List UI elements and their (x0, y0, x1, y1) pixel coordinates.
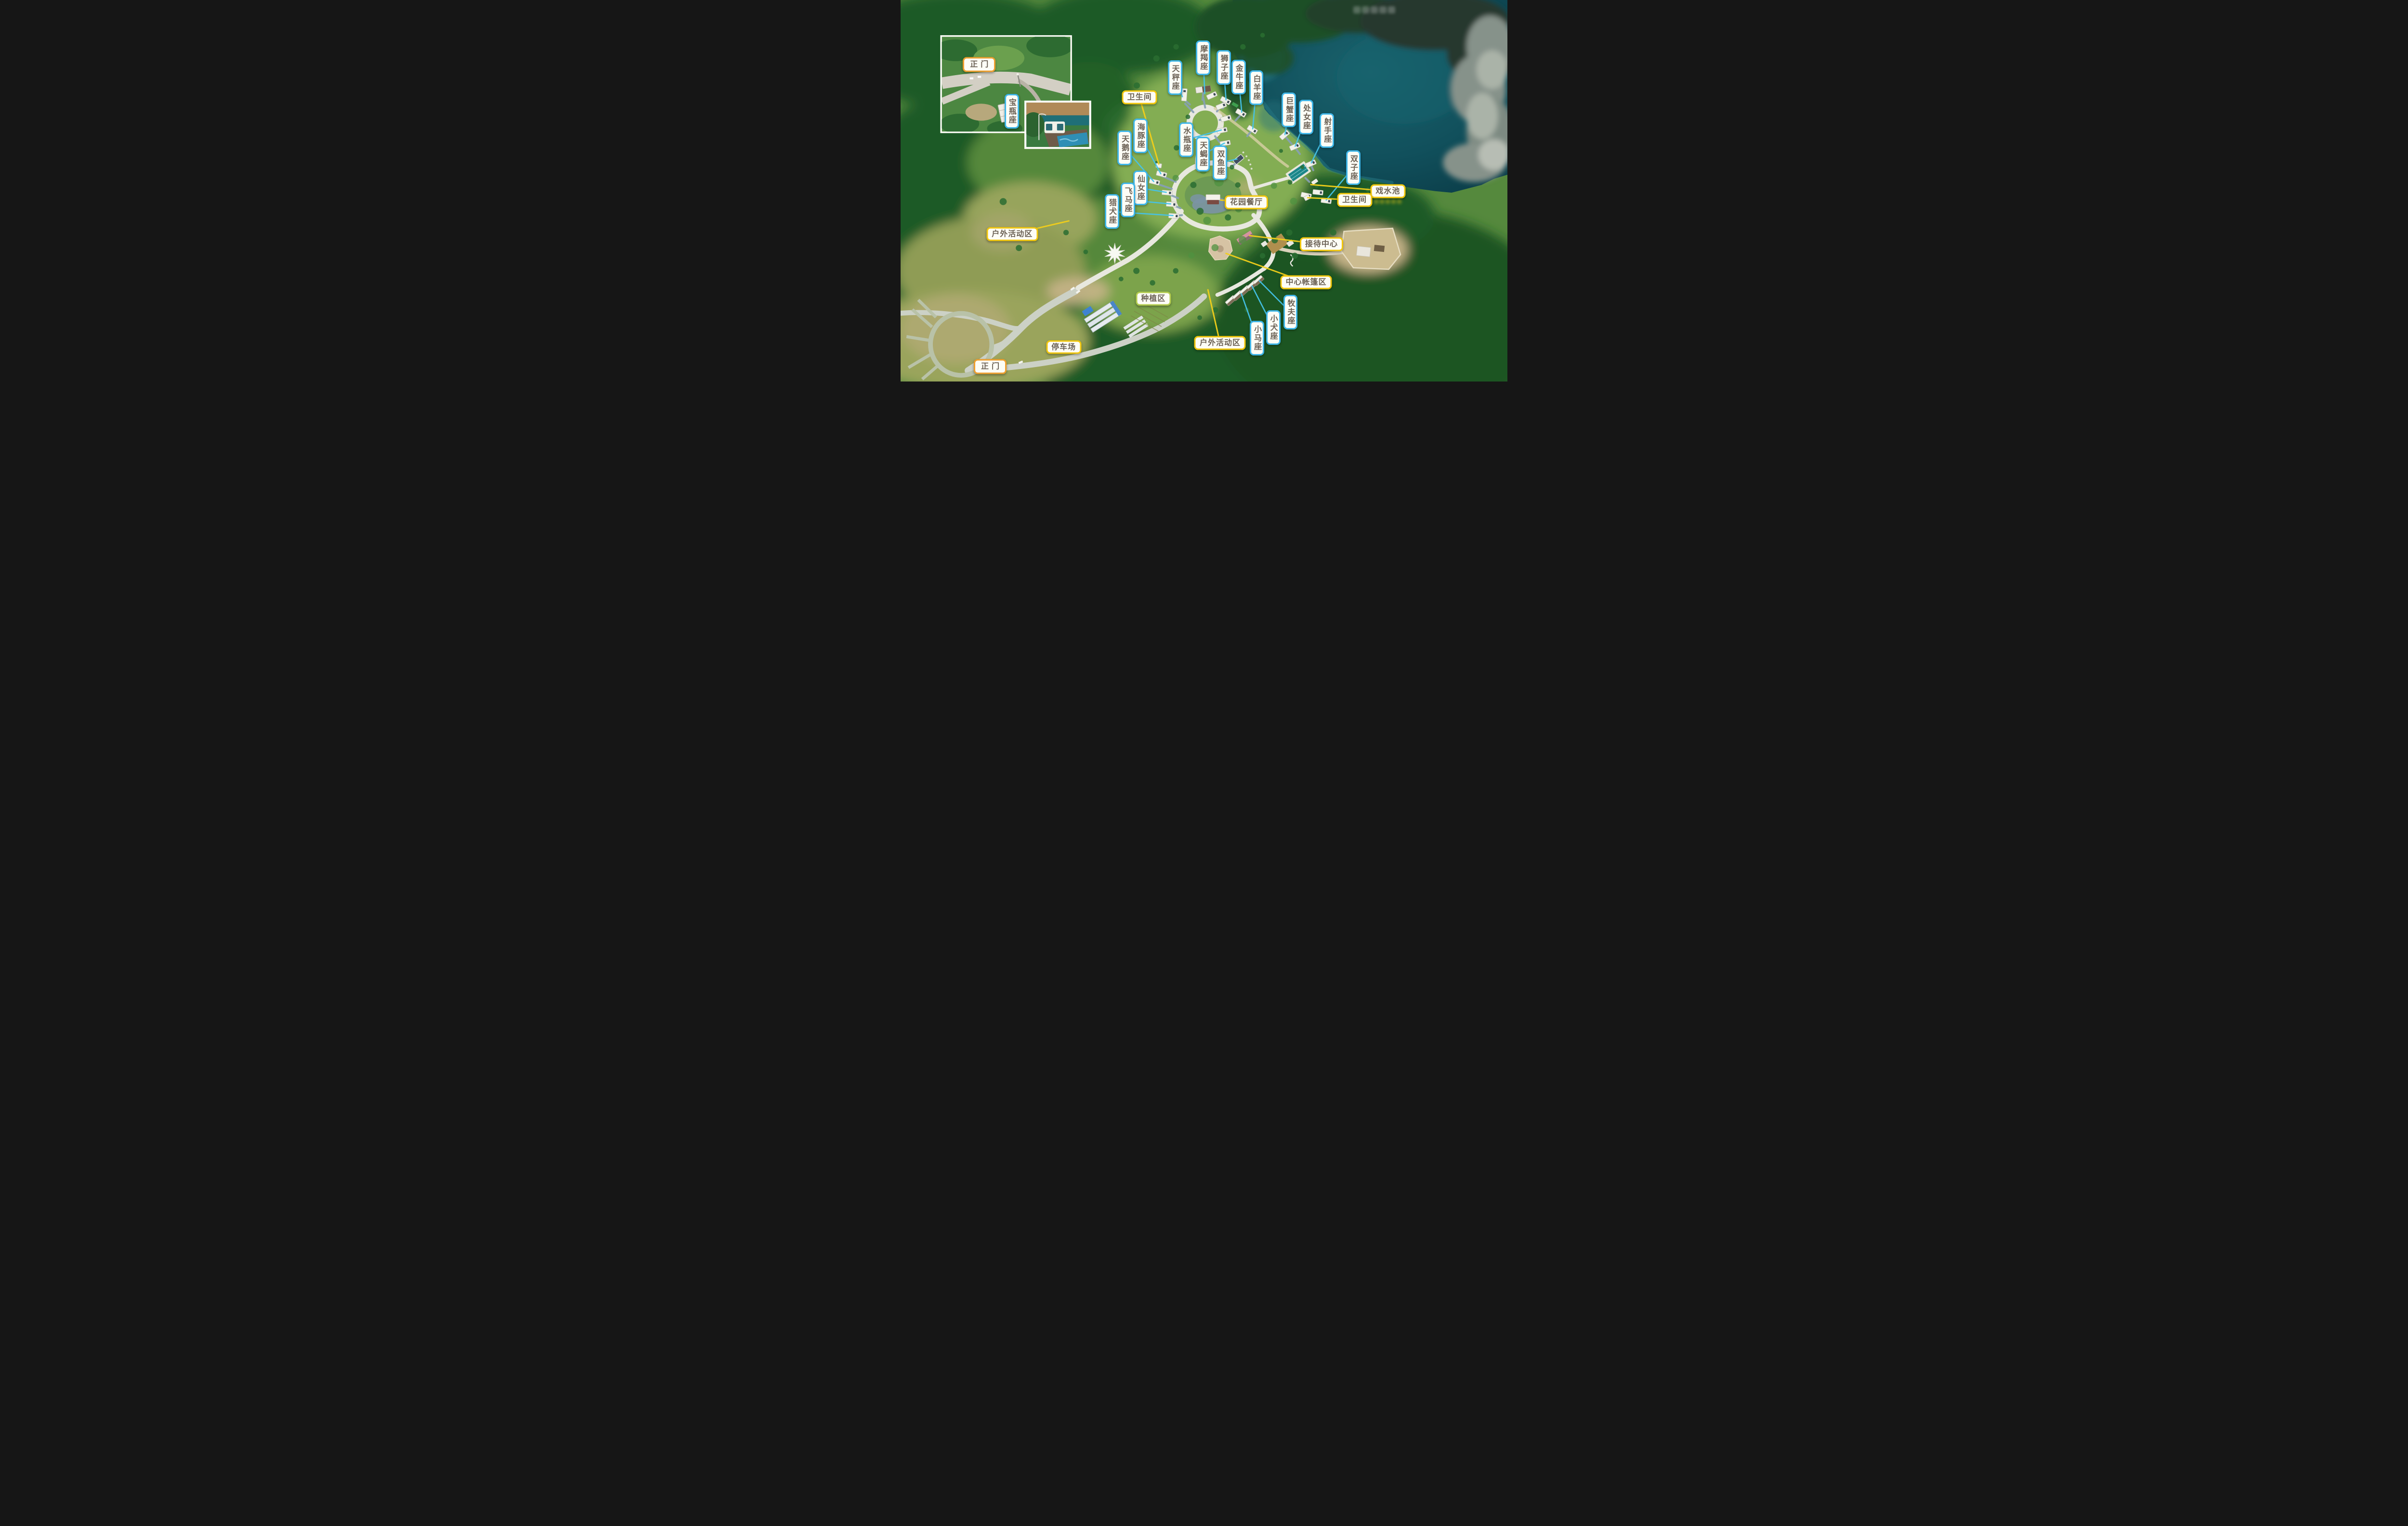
watermark-top-right (1353, 6, 1395, 13)
watermark-pool-area (1374, 199, 1401, 204)
campsite-aerial-map: 正门宝瓶座天秤座摩羯座狮子座金牛座白羊座卫生间巨蟹座处女座射手座海豚座天鹅座水瓶… (901, 0, 1507, 381)
cabin (1313, 189, 1323, 195)
cabin (1162, 190, 1172, 195)
map-canvas (901, 0, 1507, 381)
cabin-photo-inset (1022, 101, 1091, 149)
cabin (1166, 202, 1177, 207)
garden-restaurant-area (1185, 176, 1242, 214)
quarry-pad (1342, 228, 1400, 269)
